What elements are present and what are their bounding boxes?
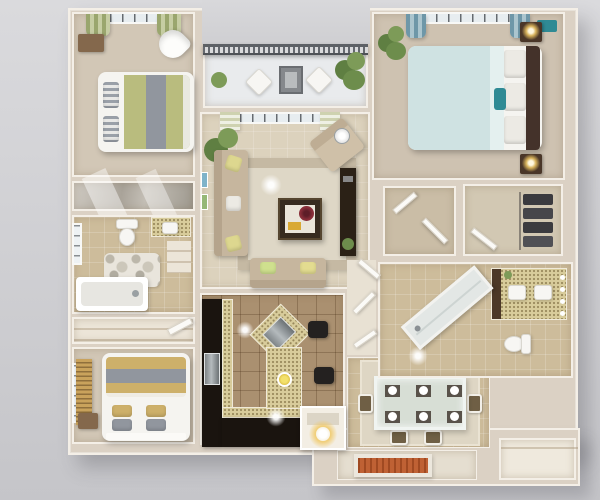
bedroom-2 xyxy=(72,347,195,444)
av-device xyxy=(343,176,353,182)
bed-1 xyxy=(98,72,194,152)
headboard xyxy=(526,46,540,150)
master-window xyxy=(422,12,512,24)
hanging-clothes xyxy=(523,222,553,233)
master-plant xyxy=(378,26,408,62)
loveseat-backrest xyxy=(250,280,326,288)
linen-closet-door xyxy=(167,317,193,335)
plant-foliage xyxy=(218,128,238,148)
master-vanity xyxy=(491,268,567,320)
foot-bench xyxy=(106,433,186,440)
diagonal-shower-tub xyxy=(401,265,494,350)
living-room xyxy=(200,112,370,289)
walk-in-closet-a xyxy=(383,186,456,256)
balcony-table xyxy=(279,66,303,94)
nightstand xyxy=(78,413,98,429)
stainless-appliance xyxy=(204,353,220,385)
balcony-chair xyxy=(245,68,273,96)
entry-console xyxy=(300,406,346,450)
light-reflection xyxy=(408,346,428,366)
sofa-pillow-yellow xyxy=(224,154,243,173)
bathroom-shelf xyxy=(167,241,191,273)
sofa-pillow-white xyxy=(226,196,241,211)
balcony-recess xyxy=(202,0,370,44)
dining-chair xyxy=(467,394,482,413)
teal-accent-pillow xyxy=(494,88,506,110)
yellow-plate xyxy=(277,372,292,387)
yellow-book xyxy=(288,222,301,230)
gold-lamp xyxy=(522,154,540,172)
closet-b-door xyxy=(470,227,497,250)
sectional-sofa xyxy=(214,150,248,256)
plate xyxy=(388,386,397,395)
nightstand-top xyxy=(520,22,542,42)
vanity-sink xyxy=(162,222,178,234)
balcony-chair xyxy=(305,66,333,94)
kitchen-island xyxy=(258,313,348,413)
placemat xyxy=(416,411,431,423)
red-decor-bowl xyxy=(299,206,314,221)
vanity xyxy=(151,217,191,237)
media-console xyxy=(340,168,356,256)
wall-art-blue xyxy=(201,172,208,188)
placemat xyxy=(385,385,400,397)
plate xyxy=(419,386,428,395)
master-bed xyxy=(408,46,542,150)
entry xyxy=(337,450,477,480)
dining-chair xyxy=(424,430,442,445)
toilet-tank xyxy=(521,334,531,354)
balcony xyxy=(203,46,368,108)
wall-art-green xyxy=(201,194,208,210)
storage-shelf-line xyxy=(501,447,578,449)
plant-foliage xyxy=(343,70,365,90)
lamp-globe xyxy=(316,427,330,441)
gold-lamp xyxy=(522,22,540,40)
duvet-light-blue xyxy=(408,46,504,150)
coffee-table xyxy=(278,198,322,240)
nightstand-bottom xyxy=(520,154,542,174)
cooktop xyxy=(262,316,296,350)
plant-foliage xyxy=(386,42,406,60)
hall-closet xyxy=(72,181,195,211)
tub-edge xyxy=(416,280,482,336)
balcony-table-top xyxy=(285,72,297,88)
dresser xyxy=(78,34,104,52)
bathroom-1-window xyxy=(72,223,82,265)
pillow-gray xyxy=(112,419,132,431)
vanity-sink xyxy=(534,285,552,300)
toilet-bowl xyxy=(119,228,135,246)
placemat xyxy=(416,385,431,397)
storage-closet xyxy=(499,438,576,480)
light-reflection xyxy=(266,407,286,427)
plate xyxy=(450,386,459,395)
plant-foliage xyxy=(388,26,404,42)
glass-dining-table xyxy=(374,376,466,430)
pillow-gray-striped xyxy=(103,82,119,108)
duvet-green xyxy=(124,75,190,149)
hanging-clothes xyxy=(523,194,553,205)
tub-faucet xyxy=(132,290,139,297)
sofa-pillow-yellow xyxy=(224,234,242,252)
balcony-plant-small xyxy=(211,72,227,88)
bathroom-1 xyxy=(72,215,195,314)
pillow-white xyxy=(504,83,526,111)
loveseat-pillow-yellow xyxy=(300,262,316,274)
hanging-clothes xyxy=(523,208,553,219)
bedroom-1 xyxy=(72,12,195,177)
vanity-plant xyxy=(504,271,512,279)
closet-rod xyxy=(519,192,521,250)
bedroom-1-curtain-left xyxy=(86,14,110,36)
bathtub xyxy=(76,277,148,311)
placemat xyxy=(447,385,462,397)
closet-a-door xyxy=(422,218,449,245)
walk-in-closet-b xyxy=(463,184,563,256)
toilet xyxy=(116,219,138,247)
master-curtain-left xyxy=(406,14,426,38)
plate xyxy=(450,412,459,421)
pillow-gray xyxy=(146,419,166,431)
loveseat xyxy=(250,258,326,288)
bed-2 xyxy=(102,353,190,441)
loveseat-pillow-green xyxy=(260,262,276,274)
floor-lamp xyxy=(334,128,350,144)
light-reflection xyxy=(236,321,254,339)
master-bedroom xyxy=(372,12,565,180)
placemat xyxy=(385,411,400,423)
vanity-lights xyxy=(560,275,565,280)
hanging-clothes xyxy=(523,236,553,247)
balcony-plant xyxy=(335,52,367,90)
linen-closet xyxy=(72,317,195,344)
master-bathroom xyxy=(378,262,573,378)
duvet-gray-stripe xyxy=(146,75,166,149)
bedroom-1-window xyxy=(108,12,164,24)
bar-stool xyxy=(308,321,328,338)
island-body xyxy=(266,347,302,409)
dining-chair xyxy=(390,430,408,445)
duvet-fold xyxy=(183,75,190,149)
master-toilet xyxy=(504,334,534,354)
vanity-sink xyxy=(508,285,526,300)
duvet-yellow-gray-striped xyxy=(106,357,186,397)
sofa-backrest xyxy=(214,150,222,256)
pillow-gray-striped xyxy=(103,116,119,142)
pillow-yellow xyxy=(146,405,166,417)
bar-stool xyxy=(314,367,334,384)
dining-chair xyxy=(358,394,373,413)
pillow-yellow xyxy=(112,405,132,417)
entry-mat xyxy=(354,454,432,477)
plate xyxy=(419,412,428,421)
living-window xyxy=(238,112,322,124)
floorplan-render xyxy=(0,0,600,500)
placemat xyxy=(447,411,462,423)
pillow-white xyxy=(504,116,526,144)
vanity-cabinet xyxy=(492,269,501,319)
closet-a-partition xyxy=(392,192,417,215)
plate xyxy=(388,412,397,421)
pillow-white xyxy=(504,50,526,78)
plant-foliage xyxy=(347,52,365,70)
pillow-stack xyxy=(504,50,526,146)
console-plant xyxy=(342,238,354,250)
light-reflection xyxy=(260,174,282,196)
console-lamp xyxy=(313,424,333,444)
